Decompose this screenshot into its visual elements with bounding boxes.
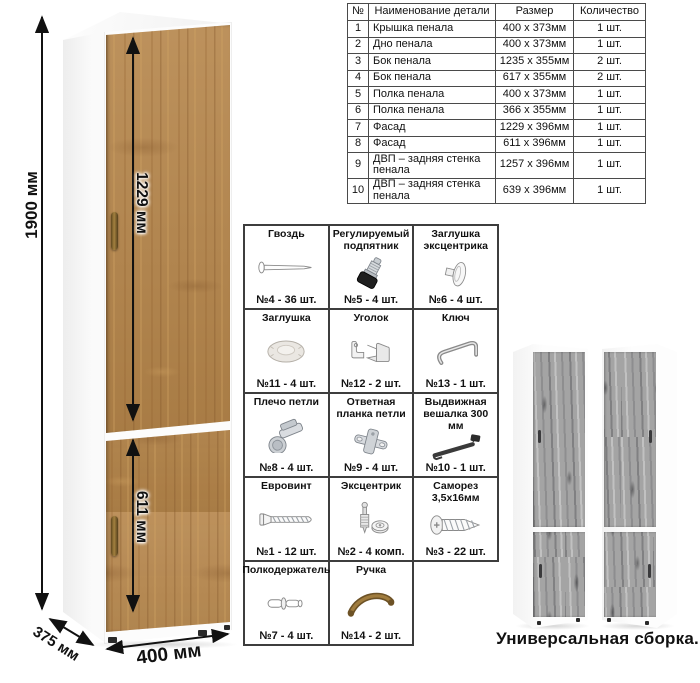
hardware-item: Ответная планка петли №9 - 4 шт. [330,394,415,478]
table-cell: 8 [348,137,369,154]
hardware-label: Ответная планка петли [331,397,412,421]
table-cell: 4 [348,71,369,88]
table-cell: Дно пенала [369,38,496,55]
col-header-quantity: Количество [574,4,646,21]
handle-icon [344,577,398,630]
hardware-count: №12 - 2 шт. [341,378,401,390]
hardware-label: Выдвижная вешалка 300 мм [415,397,496,432]
hardware-label: Полкодержатель [242,565,330,577]
hardware-label: Плечо петли [254,397,319,409]
table-cell: 2 [348,38,369,55]
cam-lock-icon [351,493,391,546]
table-cell: 639 x 396мм [496,179,574,205]
hardware-count: №4 - 36 шт. [256,294,316,306]
hardware-label: Ключ [442,313,470,325]
table-cell: 1 шт. [574,153,646,179]
table-cell: 400 x 373мм [496,87,574,104]
hardware-item: Заглушка №11 - 4 шт. [245,310,330,394]
table-cell: 1 шт. [574,21,646,38]
dimension-height-label: 1900 мм [22,171,42,239]
hardware-item: Уголок №12 - 2 шт. [330,310,415,394]
table-cell: 1229 x 396мм [496,120,574,137]
hex-key-icon [434,325,478,378]
euro-screw-icon [258,493,314,546]
table-cell: 400 x 373мм [496,21,574,38]
variant-caption: Универсальная сборка. [495,629,700,649]
table-cell: 366 x 355мм [496,104,574,121]
col-header-size: Размер [496,4,574,21]
table-cell: Фасад [369,120,496,137]
hardware-count: №9 - 4 шт. [344,462,398,474]
table-cell: 9 [348,153,369,179]
hardware-item: Евровинт №1 - 12 шт. [245,478,330,562]
hardware-label: Заглушка эксцентрика [415,229,496,253]
variant-foot [576,618,580,622]
hardware-item: Выдвижная вешалка 300 мм №10 - 1 шт. [414,394,499,478]
hardware-count: №7 - 4 шт. [259,630,313,642]
hardware-count: №6 - 4 шт. [429,294,483,306]
table-cell: 7 [348,120,369,137]
hardware-count: №10 - 1 шт. [426,462,486,474]
hardware-item: Регулируемый подпятник №5 - 4 шт. [330,226,415,310]
plug-icon [265,325,307,378]
table-cell: 400 x 373мм [496,38,574,55]
col-header-name: Наименование детали [369,4,496,21]
variant-right-lower-handle [648,564,651,578]
table-cell: 611 x 396мм [496,137,574,154]
hardware-count: №8 - 4 шт. [259,462,313,474]
hardware-label: Гвоздь [268,229,305,241]
table-cell: 1 шт. [574,38,646,55]
table-cell: 1 шт. [574,87,646,104]
variant-foot [607,618,611,622]
table-cell: 617 x 355мм [496,71,574,88]
table-cell: 1 шт. [574,104,646,121]
table-cell: 1257 x 396мм [496,153,574,179]
table-cell: 2 шт. [574,54,646,71]
pullout-hanger-icon [430,432,482,462]
table-cell: Бок пенала [369,54,496,71]
hardware-item: Полкодержатель №7 - 4 шт. [245,562,330,646]
table-cell: Полка пенала [369,104,496,121]
hardware-item: Эксцентрик №2 - 4 комп. [330,478,415,562]
self-tapping-screw-icon [429,505,483,547]
variant-foot [537,621,541,625]
table-cell: 1 шт. [574,179,646,205]
variant-foot [645,621,649,625]
table-cell: 3 [348,54,369,71]
table-cell: Фасад [369,137,496,154]
shelf-pin-icon [264,577,308,630]
hinge-arm-icon [262,409,310,462]
hardware-grid-empty-cell [414,562,499,646]
parts-table: № Наименование детали Размер Количество … [347,3,646,204]
hardware-count: №13 - 1 шт. [426,378,486,390]
table-cell: 1235 x 355мм [496,54,574,71]
hardware-label: Евровинт [261,481,312,493]
hardware-label: Ручка [356,565,386,577]
variant-right-upper-handle [649,430,652,443]
hardware-label: Уголок [354,313,389,325]
variant-left-upper-handle [538,430,541,443]
dimension-lower-door-label: 611 мм [132,491,150,543]
table-cell: ДВП – задняя стенка пенала [369,179,496,205]
hardware-label: Эксцентрик [341,481,401,493]
hardware-count: №5 - 4 шт. [344,294,398,306]
hardware-count: №11 - 4 шт. [257,378,317,390]
adjustable-foot-icon [353,253,389,295]
table-cell: ДВП – задняя стенка пенала [369,153,496,179]
hardware-count: №2 - 4 комп. [337,546,404,558]
nail-icon [257,241,315,294]
hardware-label: Регулируемый подпятник [331,229,412,253]
table-cell: Крышка пенала [369,21,496,38]
dimension-arrows [0,0,250,683]
cam-cap-icon [439,253,473,295]
hardware-item: Ключ №13 - 1 шт. [414,310,499,394]
hardware-item: Саморез 3,5х16мм №3 - 22 шт. [414,478,499,562]
hardware-label: Саморез 3,5х16мм [415,481,496,505]
hardware-item: Ручка №14 - 2 шт. [330,562,415,646]
table-cell: Бок пенала [369,71,496,88]
hardware-count: №1 - 12 шт. [256,546,316,558]
table-cell: 10 [348,179,369,205]
table-cell: 1 шт. [574,137,646,154]
table-cell: 1 шт. [574,120,646,137]
assembly-sheet: 1900 мм 1229 мм 611 мм 375 мм 400 мм № Н… [0,0,700,683]
hardware-item: Заглушка эксцентрика №6 - 4 шт. [414,226,499,310]
table-cell: 5 [348,87,369,104]
table-cell: 1 [348,21,369,38]
hardware-count: №3 - 22 шт. [426,546,486,558]
hardware-item: Гвоздь №4 - 36 шт. [245,226,330,310]
table-cell: Полка пенала [369,87,496,104]
table-cell: 6 [348,104,369,121]
hardware-label: Заглушка [262,313,311,325]
hardware-count: №14 - 2 шт. [341,630,401,642]
col-header-number: № [348,4,369,21]
table-cell: 2 шт. [574,71,646,88]
hardware-item: Плечо петли №8 - 4 шт. [245,394,330,478]
hardware-grid: Гвоздь №4 - 36 шт. Регулируемый подпятни… [243,224,499,646]
hinge-plate-icon [352,421,390,463]
variant-left-lower-handle [539,564,542,578]
corner-bracket-icon [349,325,393,378]
dimension-upper-door-label: 1229 мм [132,172,150,234]
